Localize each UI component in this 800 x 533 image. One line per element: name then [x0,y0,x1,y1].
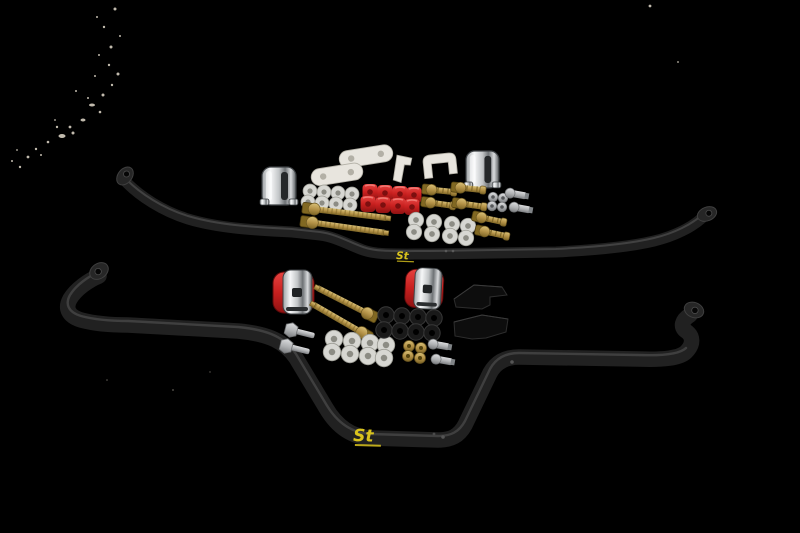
photo-canvas: St [0,0,800,533]
svg-text:St: St [353,426,375,447]
white-end-plate [310,162,364,187]
rubber-bushing-set [376,307,442,341]
silver-bolt [508,201,533,215]
front-bar-hardware-kit [273,267,508,367]
chrome-saddle-clamp [464,151,501,188]
chrome-red-bushing-clamp [273,270,314,314]
red-bushing-set [361,184,422,215]
silver-nut-set [487,192,508,212]
gold-washer-set [403,341,427,364]
front-bar-hole [510,360,514,364]
chrome-saddle-clamp [260,167,298,205]
clear-washer-set [406,212,475,245]
silver-bolt [430,353,455,367]
chrome-red-bushing-clamp [404,267,444,310]
front-bar-hole [433,433,436,436]
product-photo-sway-bar-kit: St [0,0,800,533]
black-mount-block [454,285,507,309]
white-hat-bracket [422,152,457,178]
black-mount-block [454,315,508,339]
white-angle-bracket [393,155,412,183]
rear-bar-hole [452,250,455,253]
front-bar-hole [441,435,445,439]
zinc-long-bolt [312,281,380,323]
dust-speckles [11,5,679,391]
silver-bolt [427,338,452,352]
silver-bolt [504,187,529,201]
rear-bar-hole [445,250,448,253]
